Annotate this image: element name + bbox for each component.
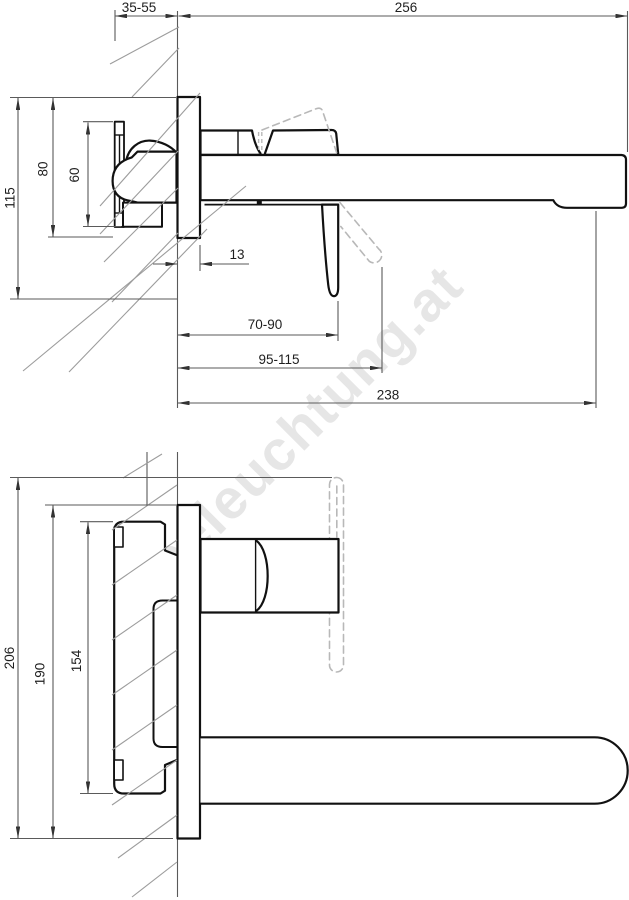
dim-underside-reach: 238 [377,388,400,403]
dim-outlet-reach-range: 70-90 [248,317,283,332]
concealed-body-side [113,122,177,227]
dim-handle-tip-reach-range: 95-115 [258,352,299,367]
dim-overall-length: 206 [2,647,17,670]
wall-plate-plan [178,505,201,839]
outlet-leg [322,205,338,297]
dim-plate-height: 80 [36,161,51,176]
body-notch-top [114,527,123,547]
dim-total-height: 115 [3,187,18,209]
handle-body-plan [201,539,339,613]
joint-notch [257,200,262,205]
lever-handle-side [265,130,339,155]
wall-plate-side [178,97,201,238]
dim-body-height: 60 [67,167,82,182]
dim-wall-thickness-range: 35-55 [122,0,157,15]
body-notch-bottom [114,760,123,780]
dim-plate-depth: 13 [229,247,244,262]
side-view: 35-55 256 115 80 60 13 70-90 95-115 238 [3,0,628,408]
dim-plate-length: 190 [33,663,48,686]
plan-view: 206 190 154 [2,452,628,897]
spout-plan [201,737,628,803]
leg-swung-dashed [340,203,382,263]
technical-drawing-page: beleuchtung.at [0,0,629,900]
spout-side [201,155,627,208]
dim-spout-reach: 256 [395,0,418,15]
handle-base [201,131,262,155]
handle-block-plan [201,539,339,613]
faucet-dimension-drawing: beleuchtung.at [0,0,629,900]
dim-body-length: 154 [69,649,84,672]
